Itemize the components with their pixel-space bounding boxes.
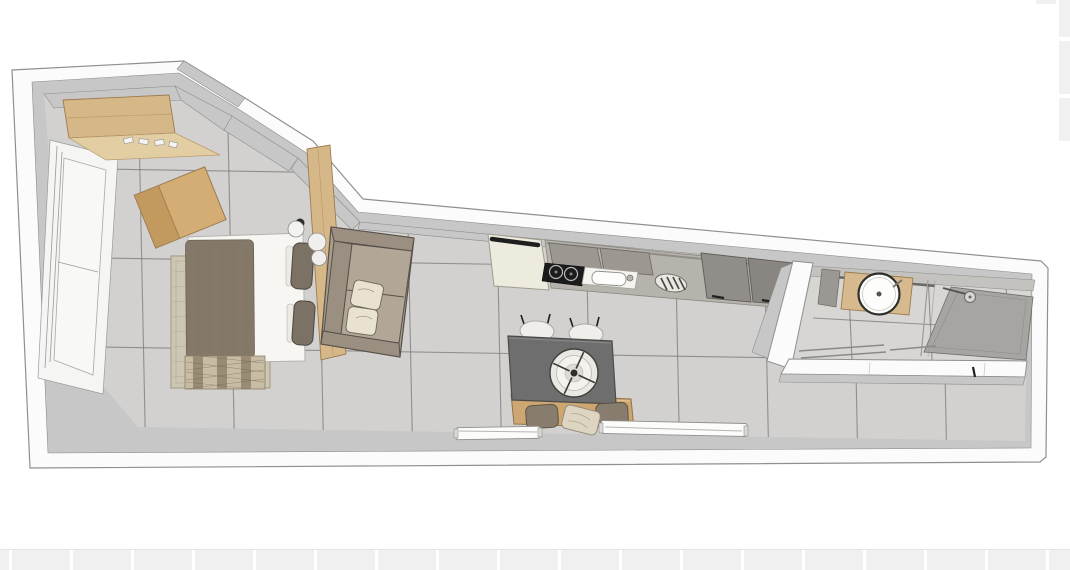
- bed-pillow: [290, 242, 314, 289]
- grid-gap: [314, 550, 317, 570]
- bathroom: [752, 261, 1035, 385]
- grid-gap: [1059, 37, 1070, 41]
- fridge[interactable]: [488, 234, 549, 290]
- vanity[interactable]: [841, 272, 913, 315]
- shoe-item: [155, 139, 165, 145]
- wall-lamp: [288, 221, 304, 237]
- grid-gap: [1046, 550, 1049, 570]
- grid-gap: [619, 550, 622, 570]
- foot-throw: [185, 356, 265, 389]
- floor-convector[interactable]: [599, 420, 748, 436]
- wall-lamp: [308, 233, 326, 251]
- grid-gap: [924, 550, 927, 570]
- grid-gap: [9, 550, 12, 570]
- appliance-block[interactable]: [818, 269, 840, 307]
- grid-gap: [375, 550, 378, 570]
- floor-convector[interactable]: [454, 426, 542, 439]
- bench-cushion[interactable]: [525, 404, 559, 429]
- decor-plate: [550, 349, 598, 397]
- faucet: [627, 275, 633, 281]
- grid-gap: [863, 550, 866, 570]
- background-grid-bottom: [0, 549, 1070, 570]
- wall-lamp: [312, 251, 327, 266]
- grid-gap: [741, 550, 744, 570]
- convector-endcap: [599, 423, 603, 433]
- grid-gap: [558, 550, 561, 570]
- grid-gap: [436, 550, 439, 570]
- sofa-pillow: [350, 279, 385, 311]
- burner-center: [570, 273, 573, 276]
- grid-gap: [802, 550, 805, 570]
- throw-stripe: [193, 356, 203, 389]
- grid-cell-column: [1059, 0, 1070, 141]
- grid-gap: [1059, 94, 1070, 98]
- grid-strip: [0, 550, 1070, 570]
- convector-body: [601, 420, 747, 436]
- grid-gap: [1056, 0, 1059, 141]
- convector-endcap: [454, 429, 458, 438]
- bed-pillow: [291, 300, 315, 345]
- grid-gap: [985, 550, 988, 570]
- grid-gap: [680, 550, 683, 570]
- sink-drain: [877, 292, 882, 297]
- blanket: [185, 240, 254, 359]
- tall-cabinet: [701, 253, 751, 302]
- shower-head-center: [969, 296, 972, 299]
- sofa-pillow: [345, 306, 378, 336]
- burner-center: [555, 271, 558, 274]
- convector-endcap: [744, 426, 748, 436]
- grid-gap: [192, 550, 195, 570]
- grid-gap: [131, 550, 134, 570]
- grid-gap: [70, 550, 73, 570]
- convector-endcap: [538, 428, 542, 437]
- plate-center: [571, 370, 578, 377]
- wardrobe-top: [63, 95, 175, 138]
- grid-gap: [253, 550, 256, 570]
- sink-basin: [592, 271, 627, 286]
- sofa[interactable]: [321, 227, 414, 357]
- convector-body: [456, 426, 540, 439]
- grid-gap: [497, 550, 500, 570]
- grid-top-hairline: [0, 549, 1070, 550]
- shoe-item: [139, 138, 149, 144]
- dining-table[interactable]: [508, 336, 616, 404]
- floorplan-canvas[interactable]: [0, 0, 1070, 570]
